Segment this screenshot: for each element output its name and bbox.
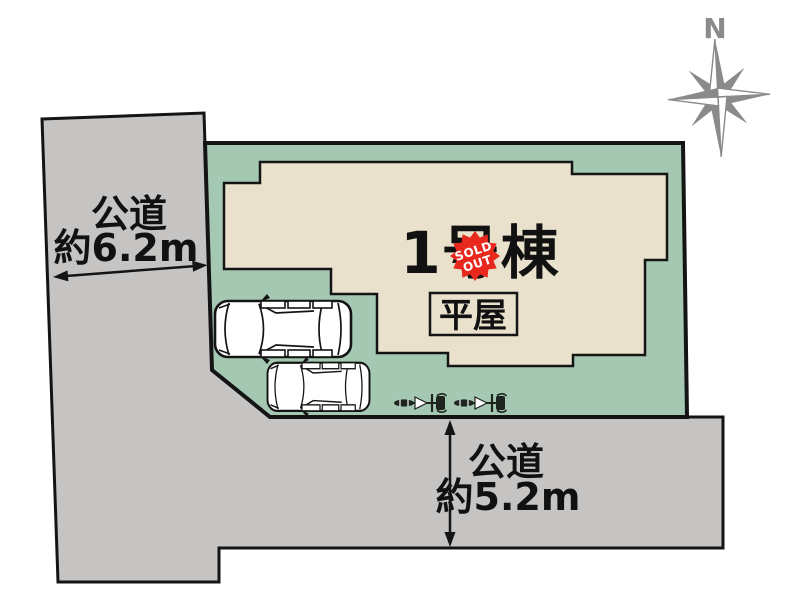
compass-rose-icon: N xyxy=(665,12,773,160)
west-road-width: 約6.2m xyxy=(54,226,199,270)
site-plan: 公道 約6.2m 公道 約5.2m 1号棟 平屋 SOLD OUT xyxy=(0,0,800,600)
car-icon xyxy=(215,294,351,364)
south-road-width: 約5.2m xyxy=(436,475,581,519)
building-style-label: 平屋 xyxy=(439,296,507,336)
car-icon xyxy=(268,357,370,417)
site-plan-drawing: 公道 約6.2m 公道 約5.2m 1号棟 平屋 SOLD OUT xyxy=(0,0,800,600)
